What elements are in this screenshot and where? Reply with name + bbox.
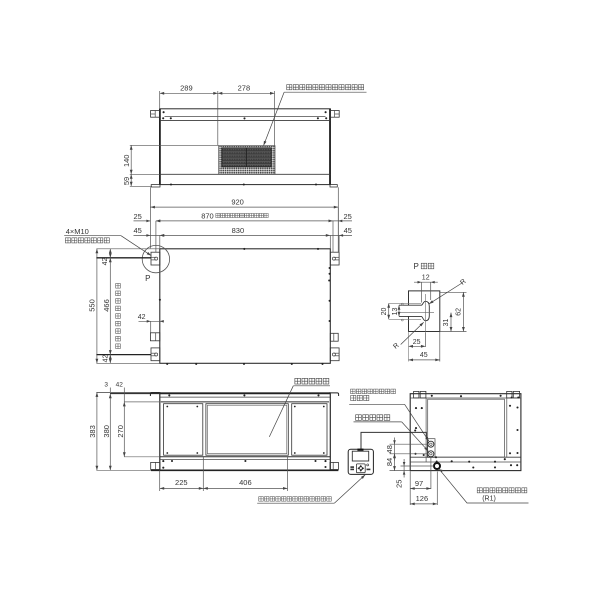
svg-text:126: 126 xyxy=(416,494,429,503)
svg-text:20: 20 xyxy=(381,308,388,316)
svg-text:270: 270 xyxy=(116,425,125,438)
svg-text:12: 12 xyxy=(422,274,430,281)
svg-text:(R1): (R1) xyxy=(482,496,496,503)
svg-text:84: 84 xyxy=(385,458,394,466)
svg-text:59: 59 xyxy=(122,177,131,185)
svg-text:920: 920 xyxy=(231,197,244,206)
svg-text:383: 383 xyxy=(88,425,97,438)
svg-text:42: 42 xyxy=(103,355,110,363)
svg-text:25: 25 xyxy=(413,339,421,346)
svg-text:140: 140 xyxy=(122,155,131,168)
svg-text:289: 289 xyxy=(180,84,193,93)
svg-text:25: 25 xyxy=(344,212,352,221)
svg-text:48: 48 xyxy=(385,445,394,453)
svg-text:62: 62 xyxy=(455,308,462,316)
svg-text:45: 45 xyxy=(420,352,428,359)
svg-text:870: 870 xyxy=(201,211,214,220)
svg-text:406: 406 xyxy=(239,478,252,487)
svg-text:42: 42 xyxy=(102,258,109,266)
svg-text:25: 25 xyxy=(394,480,403,488)
svg-text:P: P xyxy=(414,262,419,271)
svg-text:42: 42 xyxy=(138,314,146,321)
svg-text:550: 550 xyxy=(88,299,97,312)
svg-text:42: 42 xyxy=(116,382,124,389)
svg-text:278: 278 xyxy=(238,84,251,93)
svg-text:45: 45 xyxy=(134,226,142,235)
svg-text:4×M10: 4×M10 xyxy=(66,227,89,236)
svg-text:380: 380 xyxy=(102,425,111,438)
svg-text:13: 13 xyxy=(392,308,399,316)
svg-text:466: 466 xyxy=(102,299,111,312)
svg-text:25: 25 xyxy=(134,212,142,221)
svg-text:97: 97 xyxy=(415,479,423,488)
svg-text:830: 830 xyxy=(232,226,245,235)
svg-text:45: 45 xyxy=(344,226,352,235)
svg-text:31: 31 xyxy=(443,319,450,327)
svg-text:3: 3 xyxy=(104,382,108,389)
svg-text:225: 225 xyxy=(175,478,188,487)
svg-text:P: P xyxy=(145,274,150,283)
